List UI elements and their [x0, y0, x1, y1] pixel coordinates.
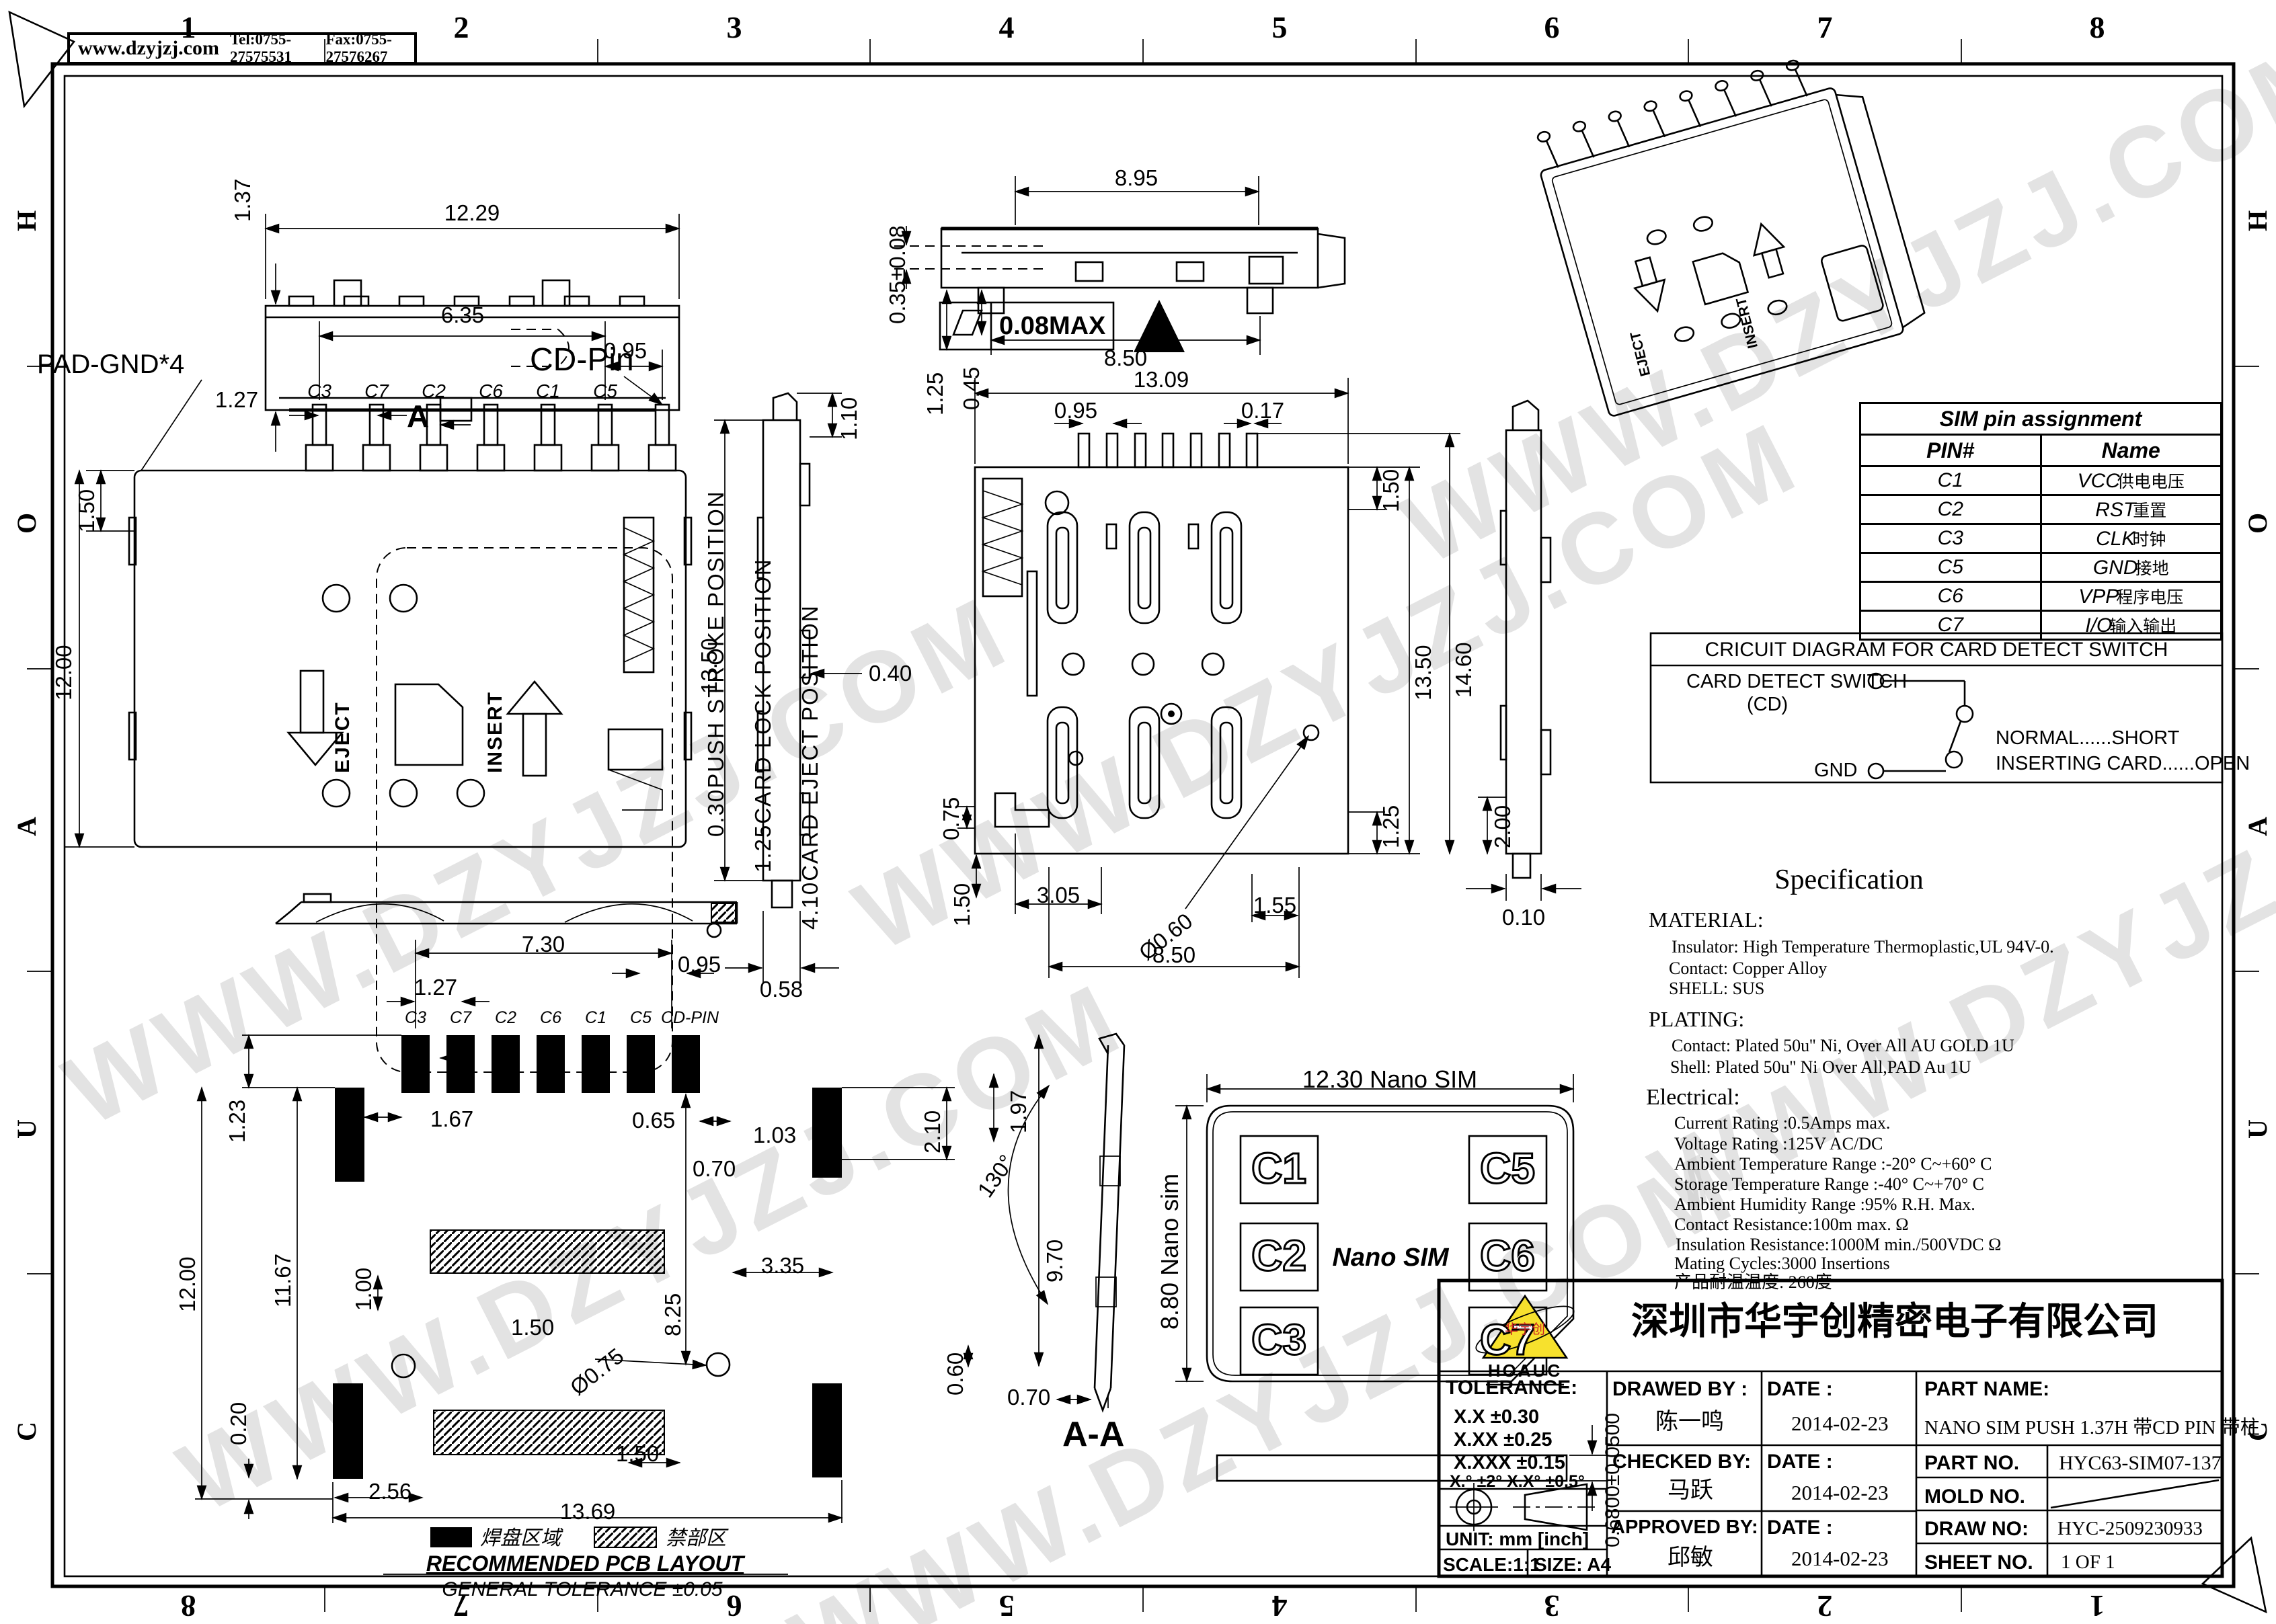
top-view [64, 321, 691, 1072]
dim-13-50-left: 13.50 [698, 638, 720, 694]
website-text: www.dzyjzj.com [78, 37, 219, 60]
tolerance-heading: TOLERANCE: [1446, 1378, 1577, 1398]
dim-0-95-b: 0.95 [1054, 399, 1097, 421]
size-label: SIZE: A4 [1534, 1555, 1611, 1574]
drawing-sheet: WWW.DZYJZJ.COM WWW.DZYJZJ.COM WWW.DZYJZJ… [0, 0, 2276, 1624]
company-name: 深圳市华宇创精密电子有限公司 [1631, 1303, 2158, 1340]
sim-dim-height: 8.80 Nano sim [1158, 1174, 1182, 1330]
spec-title: Specification [1774, 866, 1924, 894]
pin-name-cn: 接地 [2135, 559, 2169, 578]
dim-13-09: 13.09 [1134, 368, 1189, 391]
front-view-middle [894, 176, 1345, 355]
dim-0-40: 0.40 [869, 662, 912, 684]
zone-row-right: A [2244, 817, 2271, 836]
profile-view [276, 894, 737, 937]
pcb-pin-c7: C7 [450, 1010, 471, 1026]
zone-row-right: O [2244, 513, 2271, 534]
sim-contact-c2: C2 [1251, 1234, 1306, 1277]
pin-label-c1: C1 [536, 382, 560, 401]
pin-name-en: RST [2095, 499, 2135, 521]
spec-electrical-line: Current Rating :0.5Amps max. [1674, 1114, 1890, 1132]
pin-cell: C5 [1860, 553, 2041, 582]
zone-col: 8 [2090, 12, 2105, 43]
section-mark-a-top: A [407, 401, 429, 432]
iso-view [1530, 45, 1928, 417]
flatness-value: 0.08MAX [999, 313, 1105, 339]
name-cell: CLK时钟 [2041, 524, 2222, 553]
table-row: C6VPP程序电压 [1860, 582, 2222, 611]
dim-1-50-r: 1.50 [1380, 469, 1402, 512]
table-row: C1VCC供电电压 [1860, 466, 2222, 495]
pin-cell: C7 [1860, 611, 2041, 640]
pcb-dim-11-67: 11.67 [272, 1254, 294, 1307]
eject-label: EJECT [333, 672, 353, 773]
pin-label-c2: C2 [422, 382, 446, 401]
sim-contact-c6: C6 [1480, 1234, 1535, 1277]
pcb-pin-c1: C1 [585, 1010, 606, 1026]
zone-row: U [13, 1119, 40, 1139]
approved-by-label: APPROVED BY: [1611, 1518, 1758, 1537]
circuit-switch-label: CARD DETECT SWITCH [1686, 672, 1907, 692]
tolerance-angle-row: X.° ±2° X.X° ±0.5° [1450, 1473, 1585, 1490]
pos-text-eject: 4.10CARD EJECT POSITION [799, 563, 821, 930]
draw-no-label: DRAW NO: [1924, 1519, 2029, 1539]
pos-text-lock: 1.25CARD LOCK POSITION [752, 516, 774, 872]
circuit-normal-label: NORMAL......SHORT [1996, 729, 2179, 748]
pin-name-cn: 输入输出 [2109, 617, 2176, 636]
spec-plating-line: Contact: Plated 50u'' Ni, Over All AU GO… [1672, 1037, 2014, 1055]
pcb-dim-9-70: 9.70 [1044, 1240, 1066, 1283]
drawed-by-label: DRAWED BY : [1612, 1379, 1748, 1399]
spec-material-heading: MATERIAL: [1649, 909, 1764, 930]
insert-label: INSERT [485, 672, 506, 773]
pin-name-en: I/O [2085, 614, 2112, 637]
name-cell: VPP程序电压 [2041, 582, 2222, 611]
pin-name-en: CLK [2096, 528, 2135, 550]
spec-electrical-line: Ambient Temperature Range :-20° C~+60° C [1674, 1155, 1992, 1173]
tel-text: Tel:0755-27575531 [230, 31, 315, 66]
pin-label-c6: C6 [479, 382, 503, 401]
zone-col: 6 [1544, 12, 1560, 43]
sim-contact-c1: C1 [1251, 1147, 1306, 1190]
spec-electrical-line: Insulation Resistance:1000M min./500VDC … [1676, 1236, 2001, 1254]
pcb-dim-0-20: 0.20 [227, 1402, 249, 1445]
dim-0-58: 0.58 [760, 978, 803, 1000]
sim-contact-c5: C5 [1480, 1147, 1535, 1190]
pin-table-col-name: Name [2041, 435, 2222, 466]
table-row: C2RST重置 [1860, 495, 2222, 524]
pin-cell: C2 [1860, 495, 2041, 524]
pcb-dim-1-67: 1.67 [430, 1108, 473, 1130]
dim-3-05: 3.05 [1037, 884, 1080, 906]
pcb-general-tolerance: GENERAL TOLERANCE ±0.05 [442, 1580, 722, 1600]
pcb-dim-1-23: 1.23 [226, 1100, 248, 1143]
sheet-no-label: SHEET NO. [1924, 1553, 2033, 1573]
bottom-view [957, 378, 1460, 978]
pcb-dim-0-65: 0.65 [632, 1109, 675, 1131]
zone-row: A [13, 817, 40, 836]
header-contact-bar: www.dzyjzj.com Tel:0755-27575531 Fax:075… [67, 32, 417, 65]
pcb-dim-1-97: 1.97 [1007, 1090, 1029, 1133]
spec-electrical-heading: Electrical: [1646, 1086, 1740, 1109]
pin-name-cn: 重置 [2133, 501, 2166, 520]
sim-dim-width: 12.30 Nano SIM [1302, 1067, 1477, 1092]
circuit-gnd-label: GND [1814, 761, 1857, 780]
sheet-no-value: 1 OF 1 [2061, 1553, 2115, 1572]
section-mark-a-bottom: A [403, 1034, 426, 1065]
pcb-dim-12-00: 12.00 [176, 1256, 198, 1312]
dim-1-37: 1.37 [231, 179, 253, 222]
zone-col: 5 [1272, 12, 1288, 43]
spec-electrical-line: Contact Resistance:100m max. Ω [1674, 1216, 1909, 1233]
sim-center-label: Nano SIM [1332, 1245, 1448, 1270]
zone-col: 4 [999, 12, 1015, 43]
pcb-dim-1-03: 1.03 [753, 1124, 796, 1146]
circuit-cd-label: (CD) [1747, 695, 1788, 715]
dim-1-10: 1.10 [838, 397, 860, 440]
tolerance-row: X.XXX ±0.15 [1454, 1453, 1565, 1473]
zone-col: 7 [1817, 12, 1833, 43]
dim-13-50-r: 13.50 [1412, 645, 1434, 700]
spec-electrical-line: Mating Cycles:3000 Insertions [1674, 1255, 1890, 1272]
unit-label: UNIT: mm [inch] [1446, 1530, 1589, 1549]
table-row: C7I/O输入输出 [1860, 611, 2222, 640]
dim-0-75: 0.75 [940, 797, 962, 840]
pcb-dim-7-30: 7.30 [522, 933, 565, 955]
pin-name-cn: 供电电压 [2117, 473, 2185, 491]
pcb-dim-1-00: 1.00 [352, 1268, 375, 1311]
logo-cn-text: 华宇创 [1505, 1323, 1545, 1336]
zone-col-bottom: 6 [727, 1590, 742, 1621]
spec-plating-heading: PLATING: [1649, 1008, 1744, 1030]
tolerance-row: X.X ±0.30 [1454, 1408, 1539, 1427]
zone-col: 2 [454, 12, 469, 43]
sim-contact-c3: C3 [1251, 1318, 1306, 1361]
dim-1-55: 1.55 [1253, 894, 1296, 916]
spec-material-line: Insulator: High Temperature Thermoplasti… [1672, 938, 2054, 956]
dim-8-50-b: 8.50 [1152, 944, 1195, 966]
name-cell: GND接地 [2041, 553, 2222, 582]
pin-name-en: VCC [2078, 470, 2120, 492]
pcb-pin-c5: C5 [630, 1010, 652, 1026]
zone-col-bottom: 4 [1272, 1590, 1288, 1621]
dim-1-27: 1.27 [215, 389, 258, 411]
zone-col-bottom: 5 [999, 1590, 1015, 1621]
circuit-title: CRICUIT DIAGRAM FOR CARD DETECT SWITCH [1705, 640, 2168, 660]
approved-date: 2014-02-23 [1791, 1548, 1889, 1569]
scale-label: SCALE:1:1 [1443, 1555, 1540, 1574]
dim-1-25-mid: 1.25 [924, 372, 946, 415]
fax-text: Fax:0755-27576267 [325, 31, 414, 66]
pcb-dim-1-50a: 1.50 [511, 1316, 554, 1338]
sim-pin-table: SIM pin assignment PIN# Name C1VCC供电电压 C… [1859, 402, 2222, 641]
dim-0-70-section: 0.70 [1007, 1386, 1050, 1408]
dim-12-29: 12.29 [444, 202, 500, 224]
dim-0-35: 0.35±0.08 [886, 225, 908, 324]
dim-0-95: 0.95 [604, 339, 647, 362]
pin-name-cn: 时钟 [2132, 530, 2166, 549]
dim-14-60: 14.60 [1452, 642, 1475, 698]
spec-electrical-line: 产品耐温温度: 260度 [1674, 1274, 1832, 1291]
name-cell: RST重置 [2041, 495, 2222, 524]
date-label: DATE : [1767, 1452, 1833, 1472]
pcb-dim-2-10: 2.10 [921, 1110, 943, 1153]
pcb-dim-1-27: 1.27 [414, 976, 457, 998]
side-view-right [1466, 401, 1581, 901]
pcb-layout-title: RECOMMENDED PCB LAYOUT [426, 1553, 744, 1574]
zone-row: O [13, 513, 40, 534]
draw-no-value: HYC-2509230933 [2057, 1519, 2203, 1539]
checker-name: 马跃 [1667, 1479, 1713, 1502]
checked-by-label: CHECKED BY: [1612, 1452, 1751, 1472]
pcb-dim-8-25: 8.25 [662, 1293, 684, 1336]
pin-label-c7: C7 [364, 382, 389, 401]
pin-name-en: GND [2093, 557, 2138, 579]
pin-cell: C6 [1860, 582, 2041, 611]
dim-12-00: 12.00 [52, 645, 75, 700]
pcb-dim-0-70: 0.70 [693, 1158, 736, 1180]
pcb-dim-2-56: 2.56 [368, 1480, 411, 1502]
table-row: C3CLK时钟 [1860, 524, 2222, 553]
zone-col-bottom: 2 [1817, 1590, 1833, 1621]
pad-gnd-label: PAD-GND*4 [37, 351, 184, 378]
zone-row-right: H [2244, 210, 2271, 231]
section-label-aa: A-A [1062, 1417, 1124, 1452]
name-cell: I/O输入输出 [2041, 611, 2222, 640]
zone-col-bottom: 3 [1544, 1590, 1560, 1621]
tolerance-row: X.XX ±0.25 [1454, 1430, 1553, 1450]
zone-row: H [13, 210, 40, 231]
spec-electrical-line: Storage Temperature Range :-40° C~+70° C [1674, 1176, 1984, 1193]
side-view-left [714, 393, 862, 983]
part-name-value: NANO SIM PUSH 1.37H 带CD PIN 带柱 [1924, 1418, 2260, 1438]
drawer-name: 陈一鸣 [1655, 1410, 1724, 1433]
dim-0-45: 0.45 [960, 367, 982, 410]
drawed-date: 2014-02-23 [1791, 1413, 1889, 1434]
spec-plating-line: Shell: Plated 50u'' Ni Over All,PAD Au 1… [1670, 1059, 1971, 1076]
part-no-label: PART NO. [1924, 1453, 2019, 1473]
dim-1-50: 1.50 [75, 489, 97, 532]
pin-cell: C3 [1860, 524, 2041, 553]
pin-label-c5: C5 [593, 382, 617, 401]
approver-name: 邱敏 [1667, 1546, 1713, 1569]
zone-col-bottom: 1 [2090, 1590, 2105, 1621]
pin-table-col-pin: PIN# [1860, 435, 2041, 466]
zone-col-bottom: 8 [181, 1590, 196, 1621]
part-name-label: PART NAME: [1924, 1379, 2049, 1399]
mold-no-label: MOLD NO. [1924, 1487, 2025, 1507]
dim-0-10: 0.10 [1502, 906, 1545, 928]
name-cell: VCC供电电压 [2041, 466, 2222, 495]
pcb-pin-c3: C3 [405, 1010, 426, 1026]
pin-table-title: SIM pin assignment [1860, 403, 2222, 435]
date-label: DATE : [1767, 1379, 1833, 1399]
pin-label-c3: C3 [307, 382, 331, 401]
pcb-dim-1-50b: 1.50 [616, 1443, 659, 1465]
dim-1-50-bl: 1.50 [951, 883, 973, 926]
legend-keepout-label: 禁部区 [666, 1529, 726, 1549]
dim-8-50-mid: 8.50 [1104, 347, 1147, 369]
pcb-pin-c6: C6 [540, 1010, 561, 1026]
pcb-layout [195, 940, 1039, 1574]
pcb-dim-0-95: 0.95 [678, 953, 721, 975]
pcb-dim-13-69: 13.69 [560, 1500, 616, 1522]
dim-2-00: 2.00 [1491, 805, 1514, 848]
pin-name-cn: 程序电压 [2116, 588, 2183, 607]
dim-1-25-r: 1.25 [1380, 805, 1402, 848]
spec-material-line: Contact: Copper Alloy [1669, 960, 1827, 977]
date-label: DATE : [1767, 1518, 1833, 1538]
pin-cell: C1 [1860, 466, 2041, 495]
zone-col: 3 [727, 12, 742, 43]
legend-pad-label: 焊盘区域 [480, 1529, 561, 1549]
pcb-dim-0-60: 0.60 [944, 1352, 966, 1395]
pcb-pin-cdpin: CD-PIN [661, 1010, 719, 1026]
dim-8-95: 8.95 [1115, 167, 1158, 189]
table-row: C5GND接地 [1860, 553, 2222, 582]
pcb-pin-c2: C2 [495, 1010, 516, 1026]
checked-date: 2014-02-23 [1791, 1482, 1889, 1503]
part-no-value: HYC63-SIM07-137 [2059, 1453, 2222, 1473]
circuit-inserting-label: INSERTING CARD......OPEN [1996, 754, 2250, 774]
zone-row: C [13, 1422, 40, 1441]
spec-material-line: SHELL: SUS [1669, 980, 1764, 998]
spec-electrical-line: Voltage Rating :125V AC/DC [1674, 1135, 1883, 1153]
dim-6-35: 6.35 [441, 304, 484, 326]
dim-0-17: 0.17 [1241, 399, 1284, 421]
pcb-dim-3-35: 3.35 [761, 1254, 804, 1276]
zone-row-right: U [2244, 1119, 2271, 1139]
pin-name-en: VPP [2078, 585, 2119, 608]
spec-electrical-line: Ambient Humidity Range :95% R.H. Max. [1674, 1196, 1975, 1213]
